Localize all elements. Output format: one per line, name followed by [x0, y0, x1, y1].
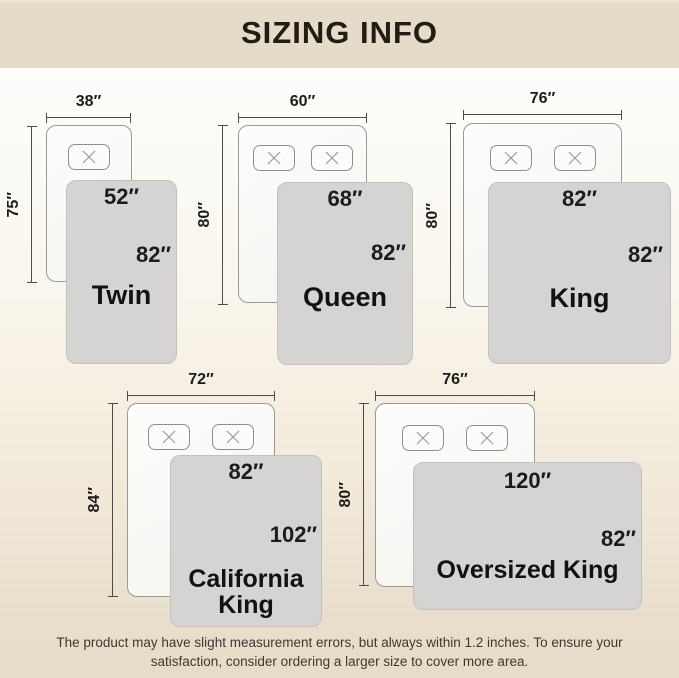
- sizing-info-page: SIZING INFO 38″ 75″ 52″ 82″ Twin 60″ 80″…: [0, 0, 679, 678]
- king-cover-width-label: 82″: [489, 186, 670, 212]
- california-king-length-dimension: 84″: [86, 403, 118, 597]
- california-king-width-dimension: 72″: [127, 370, 275, 401]
- disclaimer-note: The product may have slight measurement …: [0, 634, 679, 671]
- oversized-king-length-dimension: 80″: [337, 403, 369, 586]
- king-cover-length-label: 82″: [628, 242, 663, 268]
- queen-width-line: [238, 113, 367, 123]
- twin-cover-length-label: 82″: [136, 242, 171, 268]
- queen-cover-length-label: 82″: [371, 240, 406, 266]
- california-king-cover-rect: 82″ 102″ California King: [170, 455, 322, 627]
- pillow-icon: [212, 424, 254, 450]
- queen-length-label: 80″: [196, 202, 214, 227]
- california-king-cover-length-label: 102″: [270, 522, 317, 548]
- queen-length-dimension: 80″: [196, 125, 228, 305]
- twin-cover-width-label: 52″: [67, 184, 176, 210]
- california-king-width-line: [127, 391, 275, 401]
- king-width-line: [463, 110, 622, 120]
- twin-width-line: [46, 113, 131, 123]
- california-king-length-label: 84″: [86, 487, 104, 512]
- pillow-icon: [253, 145, 295, 171]
- queen-cover-width-label: 68″: [278, 186, 412, 212]
- california-king-length-line: [108, 403, 118, 597]
- queen-width-label: 60″: [238, 92, 367, 111]
- oversized-king-cover-rect: 120″ 82″ Oversized King: [413, 462, 642, 610]
- oversized-king-pillow-row: [376, 404, 534, 451]
- king-cover-rect: 82″ 82″ King: [488, 182, 671, 364]
- twin-length-dimension: 75″: [5, 126, 37, 283]
- oversized-king-cover-width-label: 120″: [414, 468, 641, 494]
- king-width-label: 76″: [463, 89, 622, 108]
- disclaimer-line-1: The product may have slight measurement …: [0, 634, 679, 653]
- oversized-king-width-dimension: 76″: [375, 370, 535, 401]
- pillow-icon: [490, 145, 532, 171]
- queen-pillow-row: [239, 126, 366, 171]
- twin-cover-rect: 52″ 82″ Twin: [66, 180, 177, 364]
- twin-length-label: 75″: [5, 192, 23, 217]
- pillow-icon: [148, 424, 190, 450]
- king-size-name: King: [489, 283, 670, 314]
- king-width-dimension: 76″: [463, 89, 622, 120]
- oversized-king-length-line: [359, 403, 369, 586]
- california-king-width-label: 72″: [127, 370, 275, 389]
- california-king-size-name: California King: [171, 566, 321, 618]
- king-pillow-row: [464, 124, 621, 171]
- pillow-icon: [466, 425, 508, 451]
- twin-length-line: [27, 126, 37, 283]
- california-king-cover-width-label: 82″: [171, 459, 321, 485]
- pillow-icon: [311, 145, 353, 171]
- king-length-dimension: 80″: [424, 123, 456, 308]
- twin-width-dimension: 38″: [46, 92, 131, 123]
- queen-length-line: [218, 125, 228, 305]
- california-king-pillow-row: [128, 404, 274, 450]
- oversized-king-cover-length-label: 82″: [601, 526, 636, 552]
- disclaimer-line-2: satisfaction, consider ordering a larger…: [0, 653, 679, 672]
- oversized-king-width-line: [375, 391, 535, 401]
- twin-size-name: Twin: [67, 280, 176, 311]
- oversized-king-width-label: 76″: [375, 370, 535, 389]
- queen-size-name: Queen: [278, 282, 412, 313]
- oversized-king-size-name: Oversized King: [414, 557, 641, 583]
- twin-width-label: 38″: [46, 92, 131, 111]
- queen-width-dimension: 60″: [238, 92, 367, 123]
- king-length-label: 80″: [424, 203, 442, 228]
- pillow-icon: [402, 425, 444, 451]
- twin-pillow-row: [47, 126, 131, 170]
- oversized-king-length-label: 80″: [337, 482, 355, 507]
- page-title: SIZING INFO: [0, 0, 679, 68]
- king-length-line: [446, 123, 456, 308]
- pillow-icon: [68, 144, 110, 170]
- queen-cover-rect: 68″ 82″ Queen: [277, 182, 413, 365]
- pillow-icon: [554, 145, 596, 171]
